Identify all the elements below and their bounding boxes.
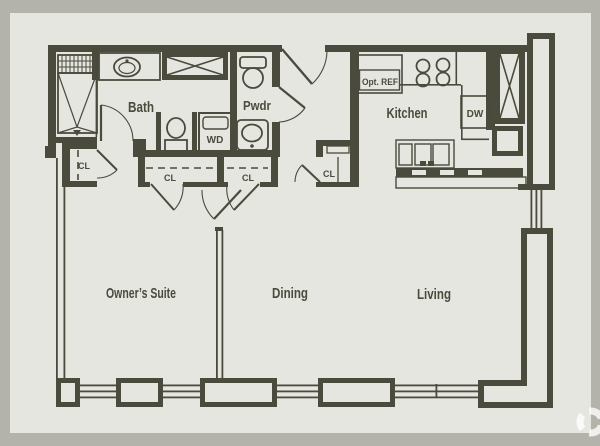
kitchen-bar-dashes bbox=[412, 170, 482, 175]
dishwasher-label: DW bbox=[467, 109, 484, 120]
shaft-x-box bbox=[494, 48, 525, 124]
linen-closet-x bbox=[162, 52, 228, 80]
hall-closet-left-label: CL bbox=[164, 173, 176, 183]
wall-top-left bbox=[50, 45, 282, 52]
floor-plan-image: Bath Pwdr Kitchen Owner’s Suite Dining L… bbox=[0, 0, 600, 446]
service-box bbox=[492, 126, 523, 156]
bath-closet-label: CL bbox=[78, 161, 90, 171]
owners-window-wall bbox=[56, 158, 58, 378]
wall-kitchen-east bbox=[486, 52, 495, 130]
shower-glass bbox=[96, 80, 98, 137]
hall-closet-right-label: CL bbox=[242, 173, 254, 183]
kitchen-label: Kitchen bbox=[387, 105, 428, 122]
pwdr-label: Pwdr bbox=[243, 98, 271, 113]
wall-left bbox=[48, 45, 56, 150]
washer-dryer-label: WD bbox=[207, 135, 224, 146]
bath-label: Bath bbox=[128, 99, 154, 116]
living-label: Living bbox=[417, 286, 451, 303]
opt-ref-label: Opt. REF bbox=[362, 77, 398, 87]
faucet bbox=[125, 59, 128, 62]
owners-suite-label: Owner’s Suite bbox=[106, 285, 176, 302]
owners-dining-divider bbox=[216, 230, 218, 378]
entry-closet-label: CL bbox=[323, 169, 335, 179]
faucet bbox=[250, 144, 254, 148]
structural-column bbox=[527, 33, 555, 190]
floor-plan-svg: Bath Pwdr Kitchen Owner’s Suite Dining L… bbox=[0, 0, 600, 446]
dining-label: Dining bbox=[272, 285, 308, 302]
